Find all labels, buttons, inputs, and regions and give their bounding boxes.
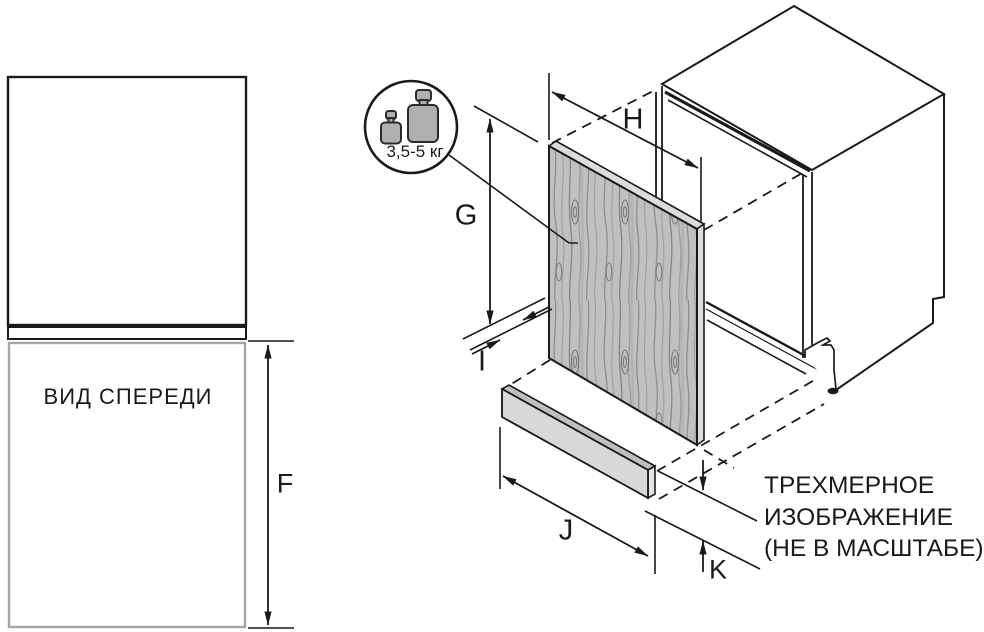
cabinet-foot-pad: [828, 388, 839, 394]
panel-front-face: [549, 146, 697, 445]
dimension-label-f: F: [277, 469, 294, 500]
panel-side-edge: [697, 224, 704, 445]
dimension-k-lines: [645, 460, 760, 572]
weight-badge-label: 3,5-5 кг: [386, 142, 443, 162]
note-line-3: (НЕ В МАСШТАБЕ): [764, 533, 984, 565]
plinth-front-face: [502, 389, 648, 498]
installation-diagram-page: ВИД СПЕРЕДИ 3,5-5 кг F G H I J K ТРЕХМЕР…: [0, 0, 984, 632]
dimension-label-h: H: [623, 104, 644, 137]
three-d-view-note: ТРЕХМЕРНОЕ ИЗОБРАЖЕНИЕ (НЕ В МАСШТАБЕ): [764, 470, 984, 565]
furniture-door-panel: [549, 141, 704, 445]
front-view-drawing: [8, 77, 294, 628]
cabinet-foot-bracket: [805, 338, 836, 389]
dimension-label-j: J: [559, 515, 574, 548]
dimension-label-i: I: [478, 346, 486, 379]
plinth-end-edge: [648, 466, 655, 498]
dimension-label-k: K: [709, 555, 727, 586]
front-view-caption: ВИД СПЕРЕДИ: [44, 384, 213, 410]
note-line-1: ТРЕХМЕРНОЕ: [764, 470, 984, 502]
front-view-upper-panel: [8, 77, 246, 325]
dimension-label-g: G: [455, 200, 478, 233]
front-view-trim-strip: [8, 327, 246, 339]
note-line-2: ИЗОБРАЖЕНИЕ: [764, 502, 984, 534]
dimension-i-lines: [463, 298, 552, 354]
dimension-g-lines: [474, 106, 538, 324]
